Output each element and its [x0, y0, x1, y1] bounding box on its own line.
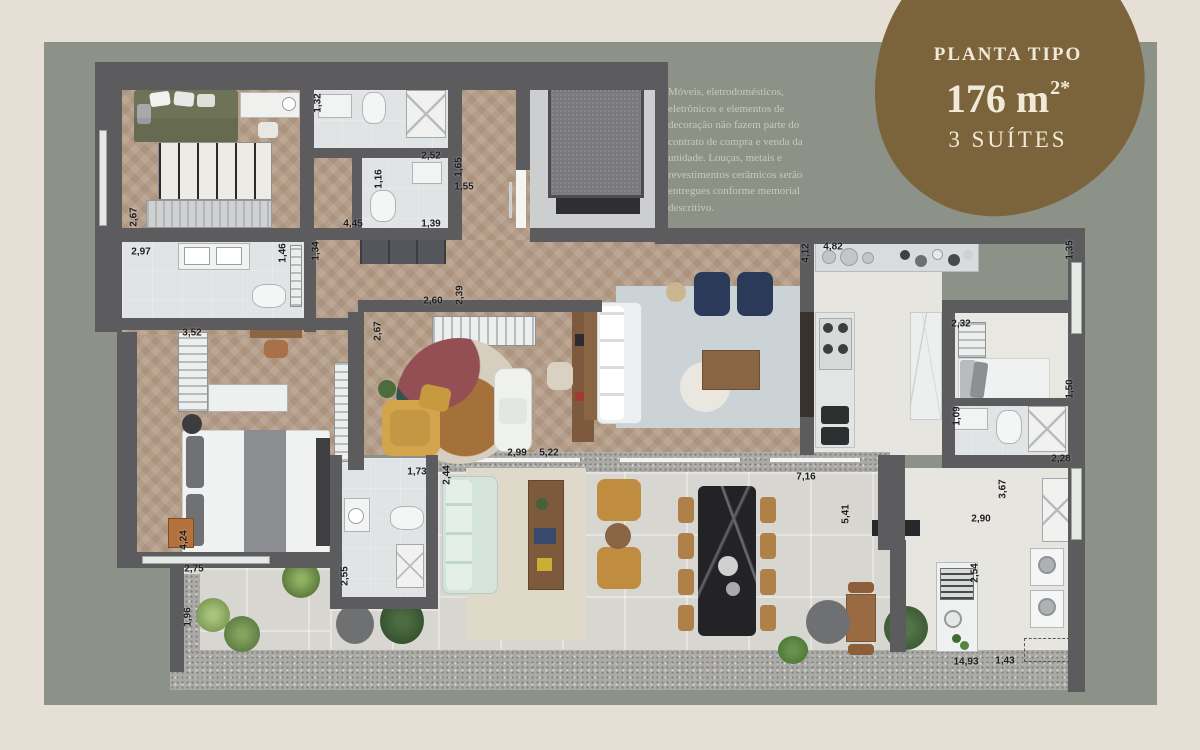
dimension-label: 2,28	[1051, 454, 1070, 465]
side-table-terrace	[605, 523, 631, 549]
dimension-label: 1,96	[183, 607, 194, 626]
bed-runner	[244, 430, 286, 554]
wall	[117, 332, 137, 568]
plant-bush	[778, 636, 808, 664]
elevator-door-mat	[556, 198, 640, 214]
dimension-label: 1,73	[407, 467, 426, 478]
entry-door	[516, 170, 526, 228]
dimension-label: 1,55	[454, 182, 473, 193]
kitchen-sink	[821, 406, 849, 424]
window	[1071, 468, 1082, 540]
washer-door	[1038, 598, 1056, 616]
wall	[95, 228, 315, 242]
dimension-label: 4,12	[801, 243, 812, 262]
dimension-label: 2,52	[421, 151, 440, 162]
kitchen-sink	[821, 427, 849, 445]
dimension-label: 1,46	[278, 243, 289, 262]
wall	[95, 62, 667, 90]
counter-dish	[963, 250, 973, 260]
bistro-chair	[848, 644, 874, 655]
wall	[942, 300, 1068, 313]
dimension-label: 2,60	[423, 296, 442, 307]
counter-dish	[948, 254, 960, 266]
wall	[348, 312, 364, 470]
shower	[1028, 406, 1066, 452]
dimension-label: 2,67	[373, 321, 384, 340]
wall	[358, 300, 602, 312]
dimension-label: 1,35	[1065, 240, 1076, 259]
toilet	[252, 284, 286, 308]
dimension-label: 5,41	[841, 504, 852, 523]
bbq-sink	[944, 610, 962, 628]
sink-basin	[348, 508, 364, 524]
sofa-terrace-cushions	[446, 480, 472, 590]
window	[142, 556, 270, 564]
dining-chair	[760, 569, 776, 595]
pillow	[149, 91, 171, 108]
closet-counter	[208, 384, 288, 412]
toilet	[390, 506, 424, 530]
sink-cabinet	[412, 162, 442, 184]
dimension-label: 2,90	[971, 514, 990, 525]
dimension-label: 1,34	[311, 241, 322, 260]
disclaimer-text: Móveis, eletrodomésticos, eletrônicos e …	[668, 84, 814, 216]
table-plant	[536, 498, 548, 510]
dimension-label: 2,55	[340, 566, 351, 585]
elevator-shaft	[548, 86, 644, 198]
kitchen-island	[910, 312, 942, 420]
wall	[655, 62, 668, 242]
armchair-yellow-seat	[390, 410, 430, 446]
wall	[878, 455, 905, 550]
dining-chair	[760, 533, 776, 559]
bistro-chair	[848, 582, 874, 593]
storage-ottoman	[396, 544, 424, 588]
wall	[955, 398, 1068, 406]
dimension-label: 3,67	[998, 479, 1009, 498]
dimension-label: 2,39	[455, 285, 466, 304]
hall-cabinet	[360, 238, 446, 264]
dimension-label: 2,99	[507, 448, 526, 459]
window	[1071, 262, 1082, 334]
lounge-chair-mustard	[597, 547, 641, 589]
sink-basin	[184, 247, 210, 265]
dining-plate	[726, 582, 740, 596]
dimension-label: 4,45	[343, 219, 362, 230]
dimension-label: 2,32	[951, 319, 970, 330]
counter-dish	[915, 255, 927, 267]
dimension-label: 14,93	[953, 657, 978, 668]
pillow	[197, 94, 215, 107]
dining-chair	[760, 497, 776, 523]
floor-plan-page: { "page": {"background_color": "#e5dfd5"…	[0, 0, 1200, 750]
area-badge: PLANTA TIPO 176 m2* 3 SUÍTES	[880, 44, 1136, 153]
round-table	[806, 600, 850, 644]
pillow	[186, 436, 204, 488]
wall	[516, 62, 530, 170]
stool	[182, 414, 202, 434]
washer-door	[1038, 556, 1056, 574]
blanket-fold	[134, 118, 238, 142]
sofa-cushions	[600, 306, 624, 420]
magazine	[534, 528, 556, 544]
stove-burner	[838, 344, 848, 354]
entry-door-handle	[509, 182, 512, 218]
dimension-label: 2,67	[129, 207, 140, 226]
wall	[655, 228, 1085, 244]
dining-chair	[678, 497, 694, 523]
dining-chair	[760, 605, 776, 631]
throw-pillow	[499, 398, 527, 424]
decor-object	[537, 558, 552, 571]
pouf	[336, 604, 374, 644]
wall	[942, 455, 1068, 468]
stove-burner	[823, 323, 833, 333]
door-track	[620, 458, 740, 462]
wardrobe-master	[178, 332, 208, 412]
bistro-table	[846, 594, 876, 642]
sofa-console	[584, 302, 597, 420]
wall	[117, 318, 348, 330]
badge-subtitle: 3 SUÍTES	[880, 127, 1136, 153]
dimension-label: 5,22	[539, 448, 558, 459]
wall	[330, 597, 438, 609]
dimension-label: 2,75	[184, 564, 203, 575]
vanity-stool	[258, 122, 278, 138]
wardrobe-suite2	[158, 142, 272, 200]
badge-area-superscript: 2*	[1050, 77, 1070, 99]
herb-pot	[960, 641, 969, 650]
toilet	[996, 410, 1022, 444]
toilet	[362, 92, 386, 124]
sink-basin	[216, 247, 242, 265]
cooktop-burner	[862, 252, 874, 264]
dimension-label: 4,82	[823, 242, 842, 253]
dimension-label: 4,24	[179, 530, 190, 549]
pillow	[173, 91, 194, 107]
dining-chair	[678, 605, 694, 631]
plant-grass	[224, 616, 260, 652]
dining-chair	[678, 533, 694, 559]
counter-dish	[900, 250, 910, 260]
dimension-label: 1,16	[374, 169, 385, 188]
dimension-label: 1,09	[952, 406, 963, 425]
dimension-label: 1,32	[313, 93, 324, 112]
shower	[406, 90, 446, 138]
plant-pot	[378, 380, 396, 398]
dimension-label: 1,43	[995, 656, 1014, 667]
dimension-label: 3,52	[182, 328, 201, 339]
dimension-label: 1,65	[454, 157, 465, 176]
linen-shelf	[290, 245, 302, 307]
armchair-navy	[737, 272, 773, 316]
stove-burner	[823, 344, 833, 354]
wall	[448, 62, 462, 240]
tv-wall-panel	[800, 312, 814, 417]
office-chair	[547, 362, 573, 390]
badge-title: PLANTA TIPO	[880, 44, 1136, 66]
dining-plate	[718, 556, 738, 576]
dimension-label: 2,54	[970, 563, 981, 582]
coffee-table	[702, 350, 760, 390]
dimension-label: 2,97	[131, 247, 150, 258]
stove-burner	[838, 323, 848, 333]
door-track	[770, 458, 860, 462]
window	[99, 130, 107, 226]
dimension-label: 1,50	[1065, 379, 1076, 398]
dimension-label: 2,44	[442, 465, 453, 484]
wall	[426, 455, 438, 605]
wall	[300, 228, 460, 240]
dimension-label: 7,16	[796, 472, 815, 483]
bed-bench	[316, 438, 330, 546]
lounge-chair-mustard	[597, 479, 641, 521]
gravel-border-bottom	[170, 650, 1068, 690]
herb-pot	[952, 634, 961, 643]
armchair-navy	[694, 272, 730, 316]
future-equipment-outline	[1024, 638, 1070, 662]
sink-basin	[282, 97, 296, 111]
wall	[530, 228, 668, 242]
dresser-suite2	[146, 200, 272, 228]
dining-chair	[678, 569, 694, 595]
toilet	[370, 190, 396, 222]
side-table	[666, 282, 686, 302]
badge-area: 176 m2*	[880, 78, 1136, 119]
door-track	[470, 458, 580, 462]
counter-dish	[932, 249, 943, 260]
desk-chair	[264, 340, 288, 358]
dimension-label: 1,39	[421, 219, 440, 230]
wall	[890, 540, 906, 652]
